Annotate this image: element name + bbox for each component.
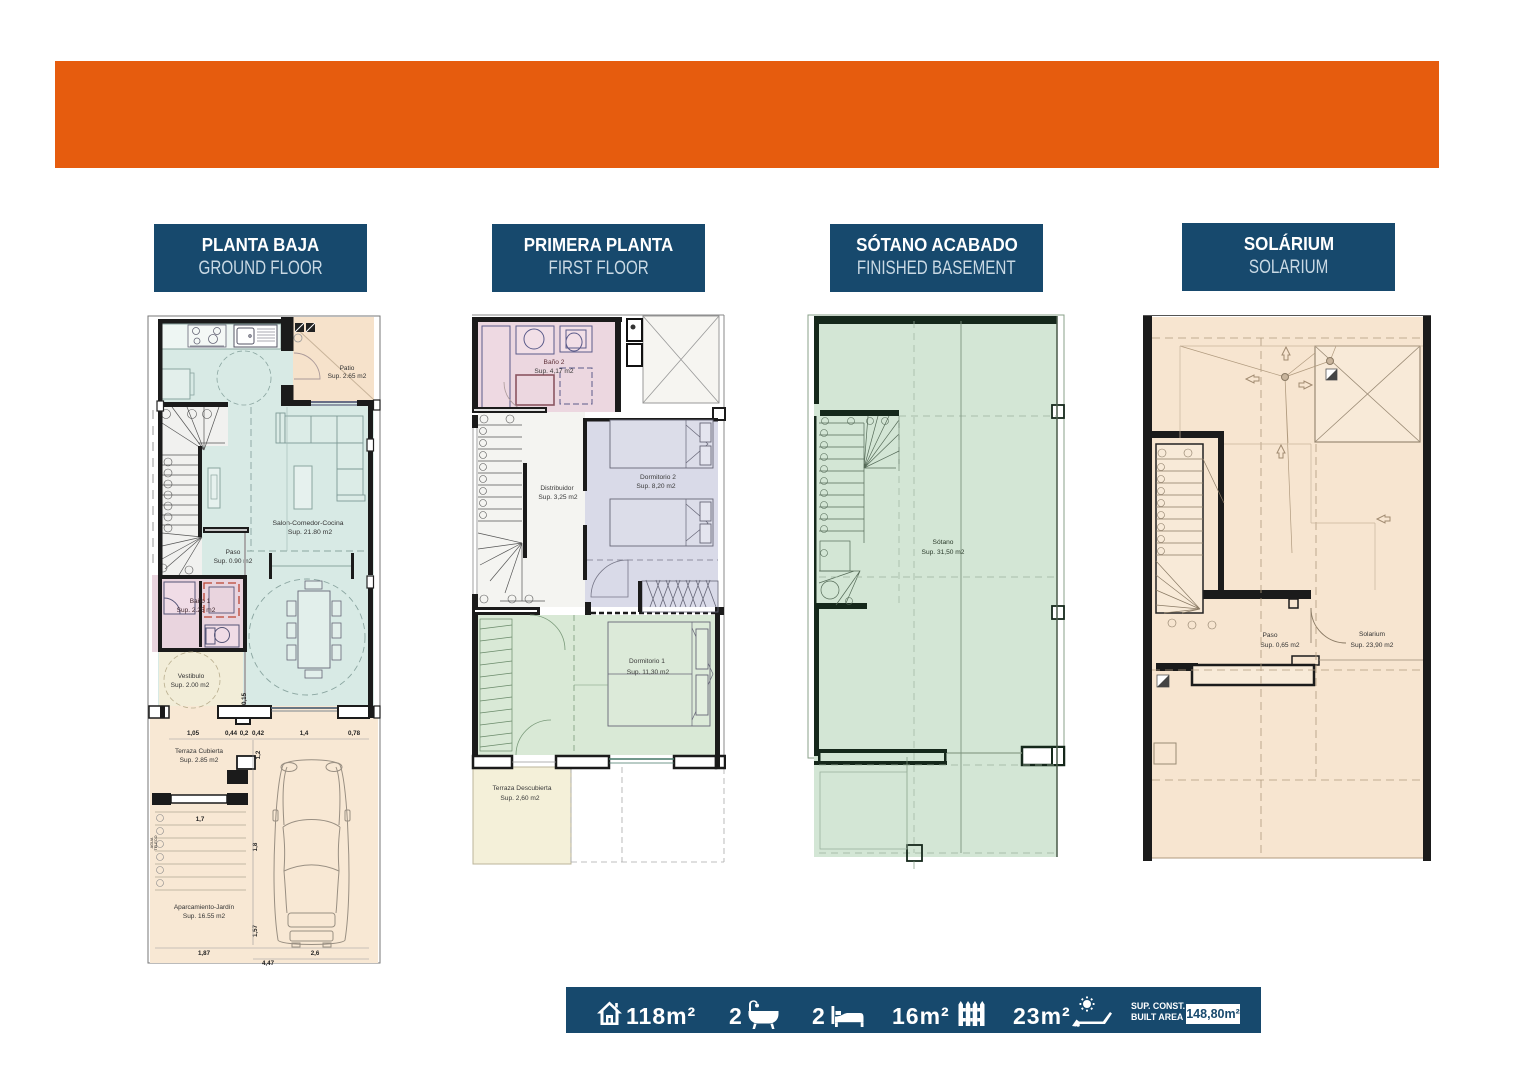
svg-text:1,87: 1,87 [198, 950, 211, 957]
svg-text:2,6: 2,6 [311, 950, 320, 957]
svg-text:Baño 2: Baño 2 [544, 359, 565, 366]
svg-text:0,15: 0,15 [241, 692, 248, 705]
svg-text:0,2: 0,2 [240, 730, 249, 737]
svg-text:Sup. 3,25 m2: Sup. 3,25 m2 [538, 494, 578, 501]
svg-text:Paso: Paso [1262, 632, 1277, 639]
svg-text:TELECO: TELECO [154, 835, 158, 850]
svg-text:Sótano: Sótano [933, 539, 954, 546]
svg-text:Distribuidor: Distribuidor [540, 485, 574, 492]
svg-text:Sup. 0,65 m2: Sup. 0,65 m2 [1260, 642, 1300, 649]
svg-text:Dormitorio 2: Dormitorio 2 [640, 474, 676, 481]
svg-text:Sup. 2,60 m2: Sup. 2,60 m2 [500, 795, 540, 802]
svg-text:Terraza Cubierta: Terraza Cubierta [175, 748, 223, 755]
svg-text:0,44: 0,44 [225, 730, 238, 737]
svg-text:4,47: 4,47 [262, 960, 275, 966]
svg-text:Terraza Descubierta: Terraza Descubierta [492, 785, 551, 792]
svg-text:Sup. 2.85 m2: Sup. 2.85 m2 [180, 757, 219, 764]
svg-text:Salon-Comedor-Cocina: Salon-Comedor-Cocina [272, 520, 343, 527]
svg-text:1,05: 1,05 [187, 730, 200, 737]
svg-text:Sup. 0.90 m2: Sup. 0.90 m2 [214, 558, 253, 565]
svg-text:Baño 1: Baño 1 [190, 598, 211, 605]
svg-text:Sup. 31,50 m2: Sup. 31,50 m2 [922, 549, 965, 556]
svg-text:Sup. 2.25 m2: Sup. 2.25 m2 [177, 607, 216, 614]
svg-text:1,7: 1,7 [196, 816, 205, 823]
svg-text:Sup. 2.65 m2: Sup. 2.65 m2 [328, 373, 367, 380]
svg-text:0,42: 0,42 [252, 730, 265, 737]
svg-text:Sup. 8,20 m2: Sup. 8,20 m2 [636, 483, 676, 490]
svg-text:Vestibulo: Vestibulo [178, 673, 205, 680]
svg-text:Dormitorio 1: Dormitorio 1 [629, 658, 665, 665]
svg-text:1,4: 1,4 [300, 730, 309, 737]
svg-text:0,78: 0,78 [348, 730, 361, 737]
svg-text:Sup. 16.55 m2: Sup. 16.55 m2 [183, 913, 226, 920]
svg-text:Sup. 23,90 m2: Sup. 23,90 m2 [1351, 642, 1394, 649]
svg-text:Sup. 2.00 m2: Sup. 2.00 m2 [171, 682, 210, 689]
svg-text:Sup. 21.80 m2: Sup. 21.80 m2 [288, 529, 332, 536]
svg-text:Sup. 4,17 m2: Sup. 4,17 m2 [534, 368, 574, 375]
svg-text:Patio: Patio [340, 365, 355, 372]
svg-text:Solarium: Solarium [1359, 631, 1386, 638]
svg-text:Aparcamiento-Jardín: Aparcamiento-Jardín [174, 904, 235, 911]
svg-text:Sup. 11,30 m2: Sup. 11,30 m2 [627, 669, 670, 676]
svg-text:Paso: Paso [226, 549, 241, 556]
svg-text:1,2: 1,2 [255, 750, 262, 759]
